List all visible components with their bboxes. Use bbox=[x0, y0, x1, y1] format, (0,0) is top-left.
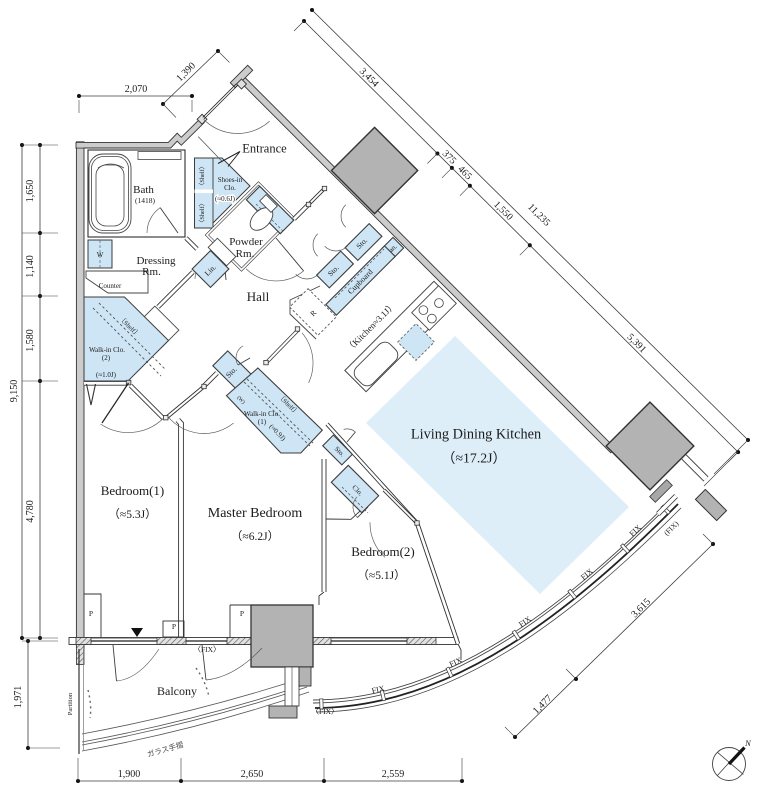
svg-text:（≈17.2J）: （≈17.2J） bbox=[442, 451, 507, 466]
svg-text:Walk-in Clo.: Walk-in Clo. bbox=[244, 410, 280, 418]
svg-text:Rm.: Rm. bbox=[236, 248, 255, 260]
svg-text:Bedroom(2): Bedroom(2) bbox=[351, 544, 415, 559]
svg-text:1,971: 1,971 bbox=[13, 686, 24, 709]
svg-text:Partition: Partition bbox=[67, 692, 74, 715]
svg-text:1,140: 1,140 bbox=[25, 255, 36, 278]
svg-text:Master Bedroom: Master Bedroom bbox=[208, 506, 303, 521]
svg-text:(≈0.6J): (≈0.6J) bbox=[215, 195, 236, 203]
svg-text:2,650: 2,650 bbox=[241, 769, 264, 780]
svg-text:〈Shelf〉: 〈Shelf〉 bbox=[199, 163, 206, 189]
svg-text:(1): (1) bbox=[258, 418, 267, 426]
svg-text:(1418): (1418) bbox=[135, 196, 155, 205]
svg-text:Clo.: Clo. bbox=[224, 184, 236, 192]
svg-text:（≈5.3J）: （≈5.3J） bbox=[108, 508, 156, 521]
svg-text:P: P bbox=[89, 609, 93, 618]
svg-text:P: P bbox=[240, 609, 244, 618]
svg-text:Hall: Hall bbox=[247, 289, 270, 304]
svg-text:〈FIX〉: 〈FIX〉 bbox=[193, 645, 220, 654]
svg-text:W: W bbox=[97, 251, 104, 259]
svg-text:P: P bbox=[172, 622, 176, 631]
svg-text:Powder: Powder bbox=[229, 236, 263, 248]
svg-text:（≈6.2J）: （≈6.2J） bbox=[231, 530, 279, 543]
svg-text:1,900: 1,900 bbox=[118, 769, 141, 780]
svg-text:Rm.: Rm. bbox=[142, 266, 161, 278]
svg-text:2,559: 2,559 bbox=[382, 769, 405, 780]
svg-text:(2): (2) bbox=[102, 354, 111, 362]
svg-text:Shoes-in: Shoes-in bbox=[218, 176, 243, 184]
svg-text:(≈1.0J): (≈1.0J) bbox=[96, 371, 117, 379]
svg-text:1,580: 1,580 bbox=[25, 329, 36, 352]
svg-text:Balcony: Balcony bbox=[157, 684, 197, 698]
svg-text:Bath: Bath bbox=[133, 184, 154, 196]
svg-text:Bedroom(1): Bedroom(1) bbox=[101, 483, 165, 498]
svg-text:1,650: 1,650 bbox=[25, 180, 36, 203]
svg-text:9,150: 9,150 bbox=[9, 380, 20, 403]
svg-text:（≈5.1J）: （≈5.1J） bbox=[357, 569, 405, 582]
svg-text:Entrance: Entrance bbox=[242, 142, 287, 156]
svg-text:2,070: 2,070 bbox=[125, 84, 148, 95]
svg-text:Walk-in Clo.: Walk-in Clo. bbox=[89, 346, 125, 354]
svg-text:Counter: Counter bbox=[99, 282, 122, 290]
svg-text:4,780: 4,780 bbox=[25, 500, 36, 523]
svg-text:〈Shelf〉: 〈Shelf〉 bbox=[199, 200, 206, 226]
svg-text:〈FIX〉: 〈FIX〉 bbox=[311, 707, 338, 716]
svg-text:Living Dining Kitchen: Living Dining Kitchen bbox=[411, 427, 541, 443]
